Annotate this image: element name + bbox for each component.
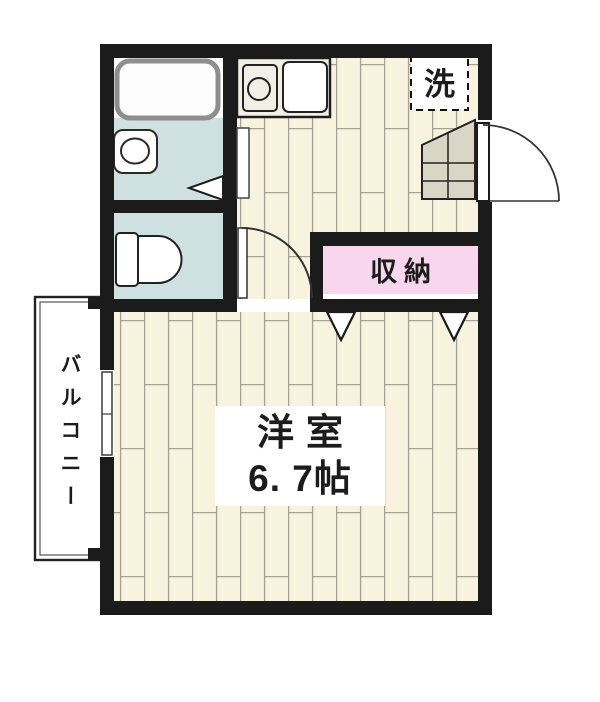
washer-label: 洗 <box>411 54 468 108</box>
wall-bottom <box>100 601 492 615</box>
closet-label: 収納 <box>323 245 478 294</box>
corridor-floor <box>237 232 310 299</box>
main-room-label: 洋室 6. 7帖 <box>215 406 385 506</box>
wash-basin-bowl <box>121 139 149 164</box>
wall-bath-toilet <box>100 200 237 213</box>
bathroom-door-panel <box>237 128 249 198</box>
kitchen-sink <box>283 62 327 112</box>
closet-door-track <box>323 294 478 299</box>
room-door-opening <box>237 299 310 312</box>
floorplan-canvas: 洗 収納 洋室 6. 7帖 バルコニー <box>0 0 600 702</box>
stove-burner-icon <box>248 78 270 100</box>
room-door-leaf <box>238 228 247 298</box>
main-room-name: 洋室 <box>245 410 355 456</box>
bathtub <box>117 61 218 118</box>
wall-left <box>100 44 114 615</box>
toilet-bowl <box>138 236 182 283</box>
main-room-size: 6. 7帖 <box>248 456 352 502</box>
wall-closet-top <box>310 232 492 246</box>
toilet-tank <box>116 233 138 286</box>
balcony-label: バルコニー <box>36 312 102 558</box>
wall-bath-kitchen <box>223 44 237 299</box>
entrance-door-leaf <box>477 123 489 201</box>
